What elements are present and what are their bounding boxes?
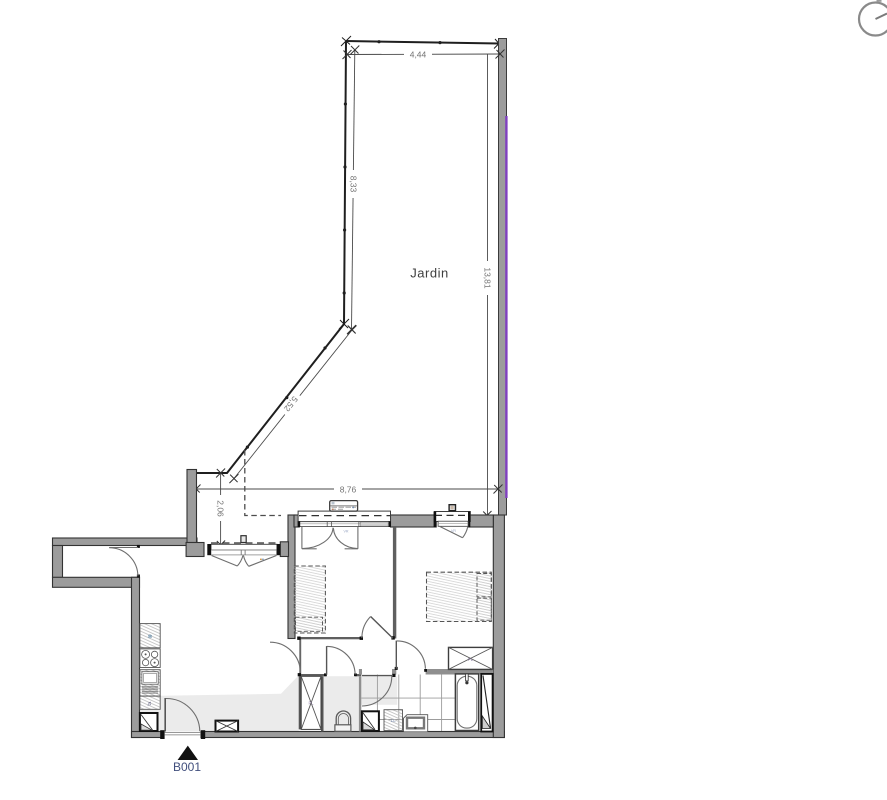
svg-text:13,81: 13,81 bbox=[482, 267, 492, 289]
svg-text:Jardin: Jardin bbox=[410, 266, 448, 281]
svg-text:PL: PL bbox=[308, 701, 314, 706]
svg-text:8,76: 8,76 bbox=[340, 485, 357, 495]
svg-text:B001: B001 bbox=[173, 760, 201, 774]
svg-text:PL: PL bbox=[468, 657, 474, 662]
svg-text:VR: VR bbox=[451, 529, 456, 533]
svg-text:❄: ❄ bbox=[147, 634, 152, 641]
svg-text:4,44: 4,44 bbox=[410, 50, 427, 60]
svg-text:♬: ♬ bbox=[147, 701, 154, 708]
svg-text:VR: VR bbox=[344, 530, 349, 534]
svg-text:2,06: 2,06 bbox=[216, 500, 226, 517]
svg-text:8,33: 8,33 bbox=[349, 176, 359, 193]
svg-text:LL: LL bbox=[391, 718, 397, 723]
